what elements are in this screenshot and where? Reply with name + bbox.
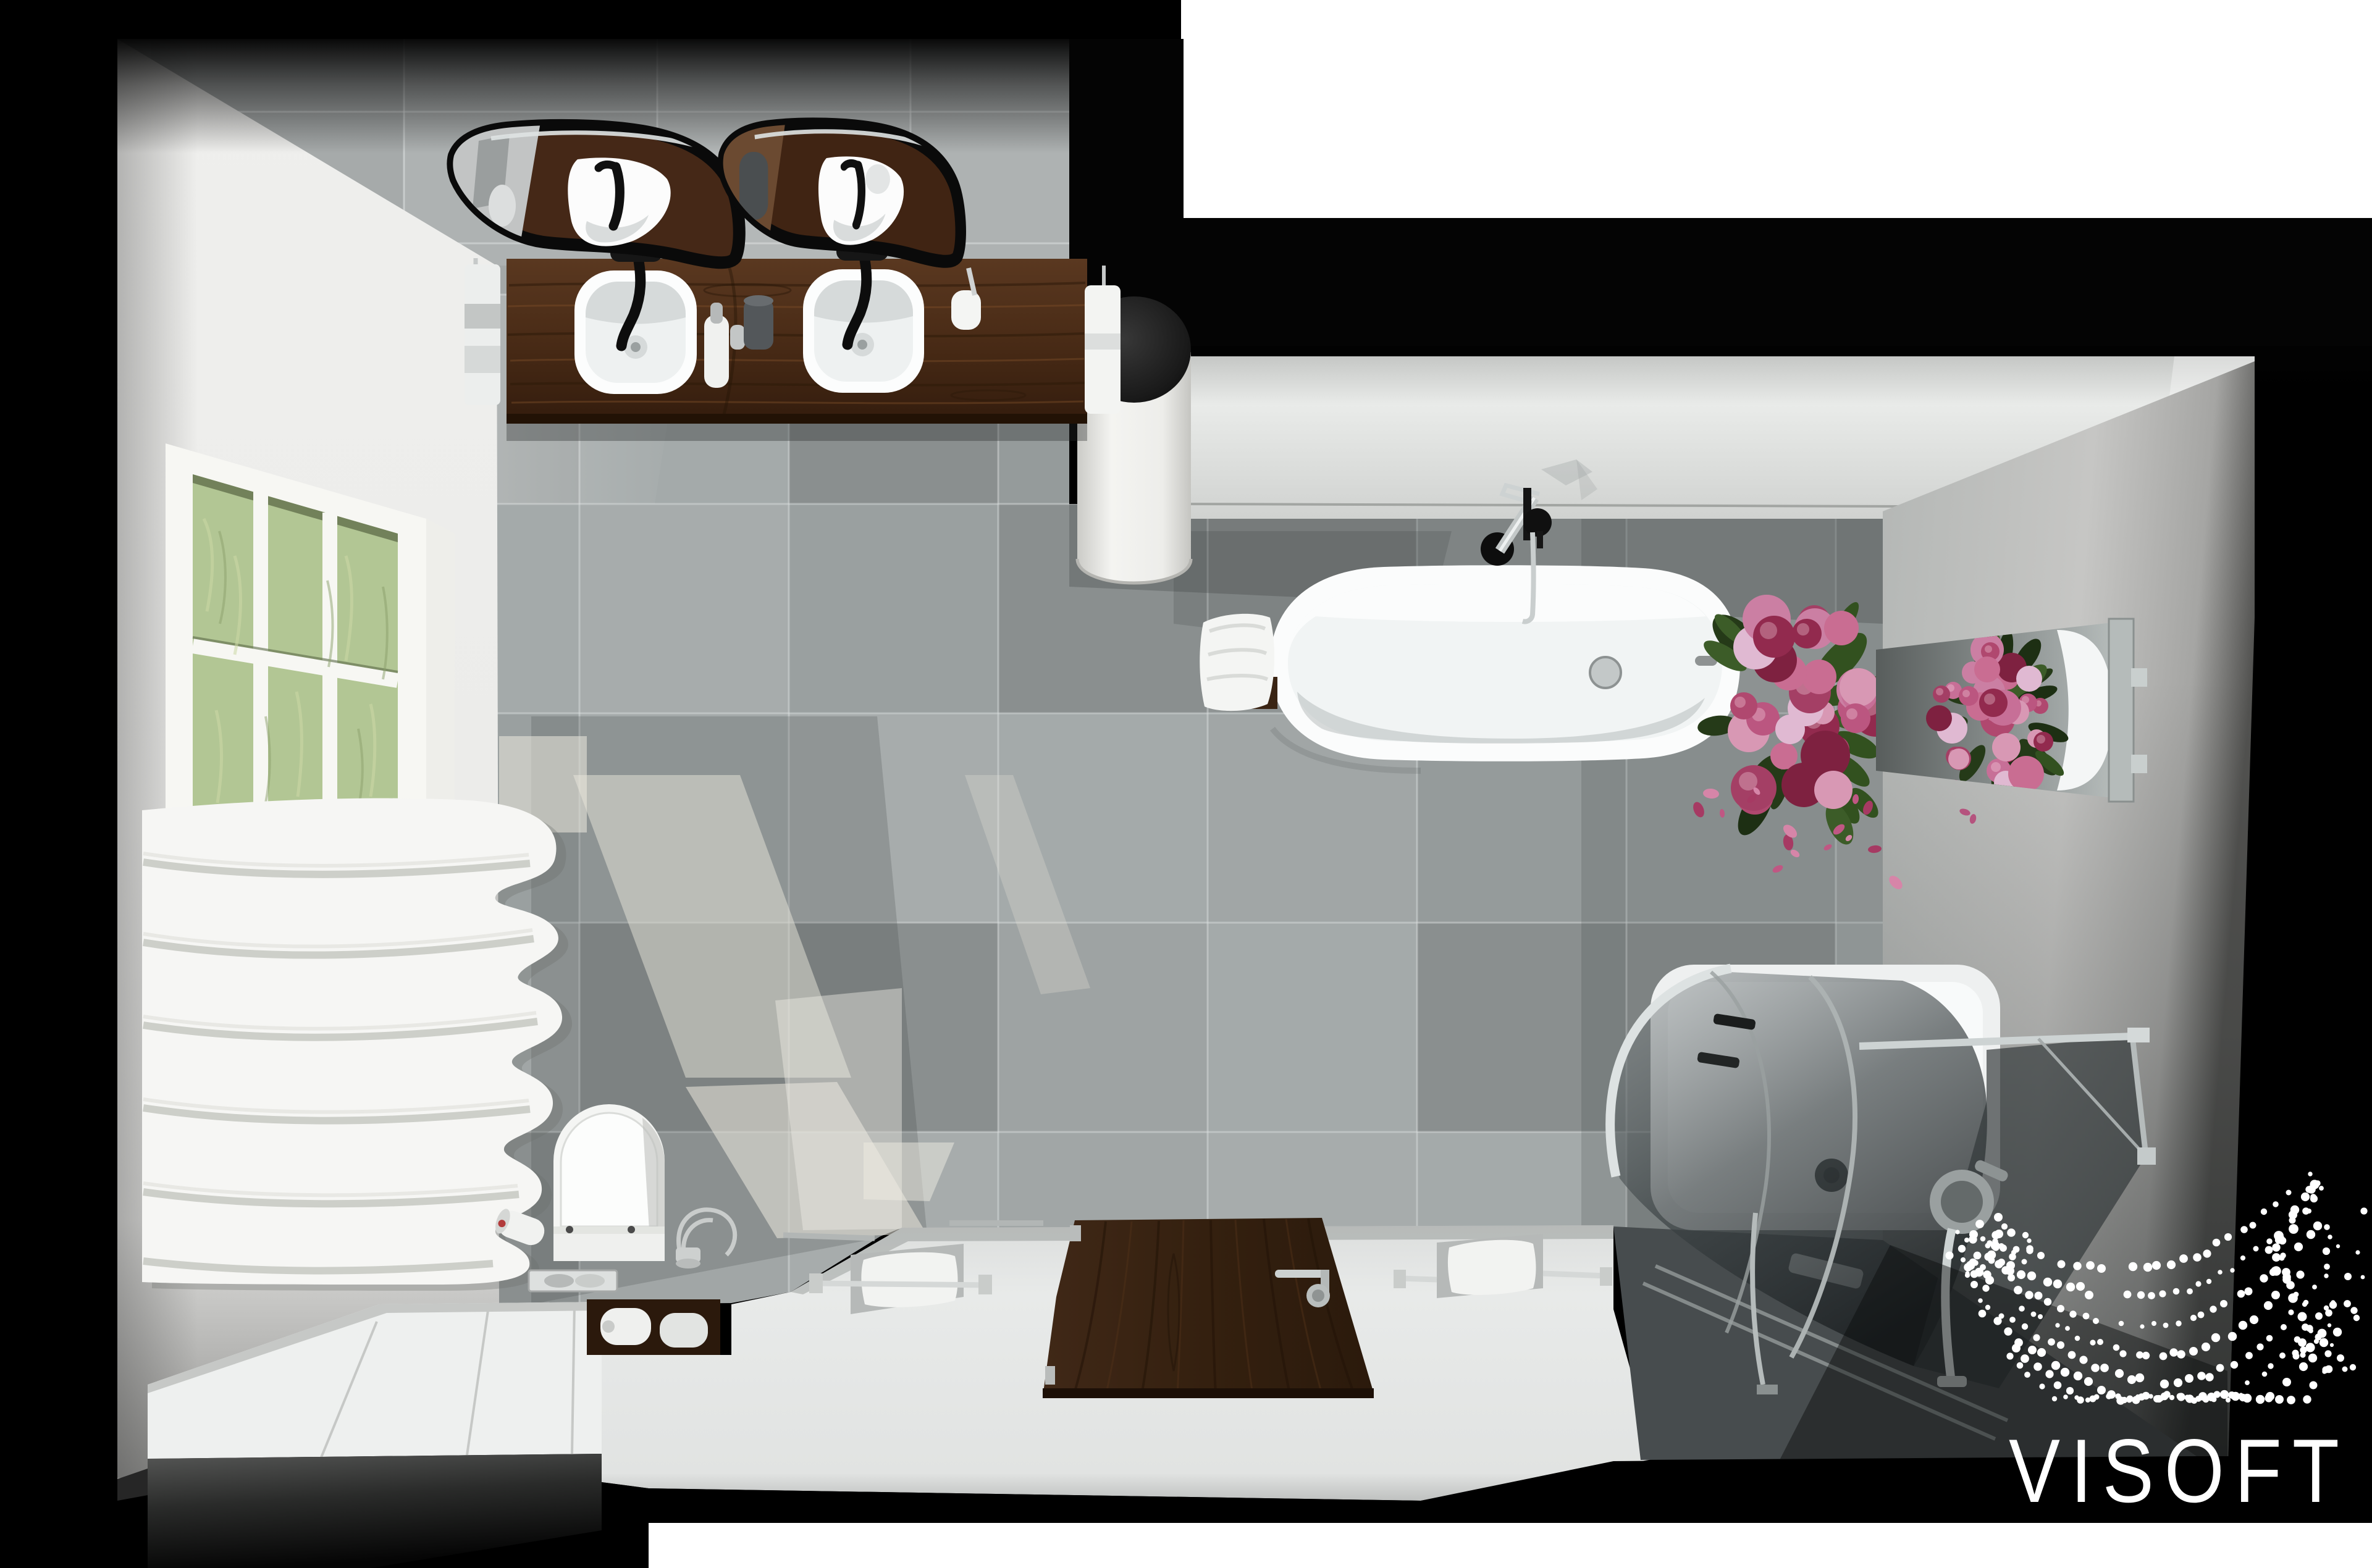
svg-text:VISOFT: VISOFT	[2009, 1420, 2350, 1521]
